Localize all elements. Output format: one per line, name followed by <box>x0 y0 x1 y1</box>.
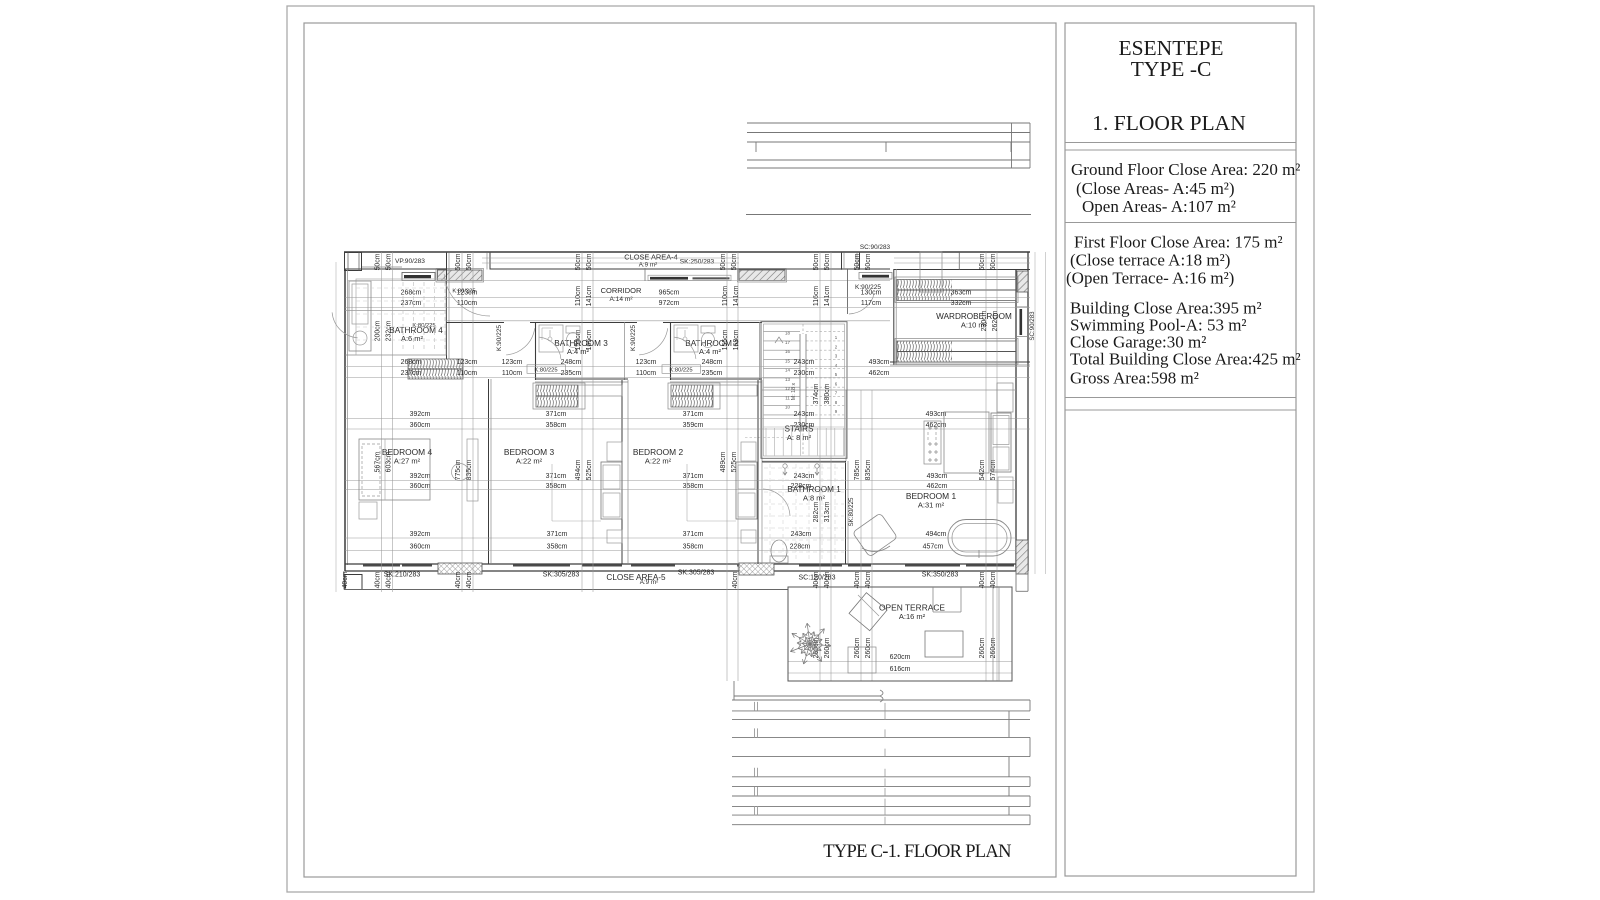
svg-text:243cm: 243cm <box>794 411 815 418</box>
svg-text:A:10 m²: A:10 m² <box>961 321 988 330</box>
svg-text:SC:90/283: SC:90/283 <box>1029 311 1036 341</box>
svg-text:SK:305/283: SK:305/283 <box>543 572 580 579</box>
svg-text:371cm: 371cm <box>546 473 567 480</box>
svg-text:117cm: 117cm <box>861 300 881 307</box>
svg-text:SK:210/283: SK:210/283 <box>384 572 421 579</box>
svg-text:260cm: 260cm <box>865 637 872 658</box>
svg-text:363cm: 363cm <box>951 290 972 297</box>
svg-text:18: 18 <box>785 331 790 336</box>
svg-text:110cm: 110cm <box>636 370 656 377</box>
svg-text:123cm: 123cm <box>457 359 478 366</box>
svg-text:228cm: 228cm <box>790 544 811 551</box>
svg-text:785cm: 785cm <box>854 459 861 480</box>
svg-text:243cm: 243cm <box>791 531 812 538</box>
svg-text:50cm: 50cm <box>990 253 997 270</box>
svg-text:SC:90/283: SC:90/283 <box>860 244 891 251</box>
svg-text:BEDROOM 2: BEDROOM 2 <box>633 447 684 457</box>
svg-text:371cm: 371cm <box>546 411 567 418</box>
svg-text:260cm: 260cm <box>824 637 831 658</box>
svg-text:282cm: 282cm <box>813 501 820 522</box>
svg-text:268cm: 268cm <box>401 359 422 366</box>
svg-text:50cm: 50cm <box>720 253 727 270</box>
svg-text:A: 8 m²: A: 8 m² <box>787 433 812 442</box>
svg-text:243cm: 243cm <box>794 473 815 480</box>
svg-text:525cm: 525cm <box>586 459 593 480</box>
svg-text:A:14 m²: A:14 m² <box>609 296 633 303</box>
svg-text:1. FLOOR PLAN: 1. FLOOR PLAN <box>1092 111 1246 135</box>
svg-text:248cm: 248cm <box>702 359 723 366</box>
svg-text:40cm: 40cm <box>732 571 739 588</box>
svg-text:374cm: 374cm <box>813 383 820 404</box>
svg-text:(Close Areas- A:45 m²): (Close Areas- A:45 m²) <box>1076 179 1235 198</box>
svg-text:237cm: 237cm <box>401 300 422 307</box>
svg-text:K:90/225: K:90/225 <box>630 325 637 351</box>
svg-text:40cm: 40cm <box>979 571 986 588</box>
svg-text:K:80/225: K:80/225 <box>669 368 692 374</box>
svg-text:616cm: 616cm <box>890 666 911 673</box>
svg-text:116cm: 116cm <box>813 286 820 306</box>
svg-text:A:27 m²: A:27 m² <box>394 457 421 466</box>
svg-text:358cm: 358cm <box>546 483 567 490</box>
svg-text:12: 12 <box>785 386 790 391</box>
svg-text:VP.90/283: VP.90/283 <box>395 258 425 265</box>
svg-text:17: 17 <box>785 340 790 345</box>
svg-text:392cm: 392cm <box>410 411 431 418</box>
svg-text:SK:350/283: SK:350/283 <box>922 572 959 579</box>
svg-text:Open Areas- A:107 m²: Open Areas- A:107 m² <box>1082 197 1236 216</box>
svg-text:50cm: 50cm <box>375 253 382 270</box>
svg-text:371cm: 371cm <box>683 531 704 538</box>
svg-text:A:4 m²: A:4 m² <box>567 347 590 356</box>
svg-text:380cm: 380cm <box>824 383 831 404</box>
svg-text:494cm: 494cm <box>575 459 582 480</box>
svg-text:50cm: 50cm <box>824 253 831 270</box>
svg-text:493cm: 493cm <box>926 411 947 418</box>
svg-text:40cm: 40cm <box>342 571 349 588</box>
svg-text:40cm: 40cm <box>466 571 473 588</box>
svg-text:BEDROOM 1: BEDROOM 1 <box>906 491 957 501</box>
svg-text:50cm: 50cm <box>386 253 393 270</box>
svg-text:358cm: 358cm <box>683 483 704 490</box>
svg-text:141cm: 141cm <box>733 285 740 306</box>
svg-text:110cm: 110cm <box>457 300 477 307</box>
svg-text:(Open Terrace- A:16 m²): (Open Terrace- A:16 m²) <box>1066 269 1234 288</box>
svg-text:50cm: 50cm <box>865 253 872 270</box>
svg-text:First Floor Close Area: 175 m²: First Floor Close Area: 175 m² <box>1074 233 1283 252</box>
svg-text:40cm: 40cm <box>455 571 462 588</box>
svg-text:360cm: 360cm <box>410 544 431 551</box>
svg-text:110cm: 110cm <box>457 370 477 377</box>
svg-text:230cm: 230cm <box>794 370 815 377</box>
svg-text:50cm: 50cm <box>731 253 738 270</box>
svg-text:Total Building Close Area:425: Total Building Close Area:425 m² <box>1070 350 1301 369</box>
svg-text:14: 14 <box>785 368 790 373</box>
svg-text:110cm: 110cm <box>502 370 522 377</box>
svg-text:358cm: 358cm <box>683 544 704 551</box>
svg-text:A:31 m²: A:31 m² <box>918 501 945 510</box>
svg-text:SK:305/283: SK:305/283 <box>678 570 715 577</box>
svg-text:332cm: 332cm <box>951 300 972 307</box>
svg-text:(Close terrace A:18 m²): (Close terrace A:18 m²) <box>1070 251 1230 270</box>
svg-text:50cm: 50cm <box>575 253 582 270</box>
svg-text:110cm: 110cm <box>575 286 582 306</box>
svg-text:493cm: 493cm <box>869 359 890 366</box>
svg-text:Ground Floor Close Area: 220 m: Ground Floor Close Area: 220 m² <box>1071 160 1300 179</box>
svg-text:50cm: 50cm <box>586 253 593 270</box>
svg-text:A:9 m²: A:9 m² <box>640 579 659 586</box>
svg-text:358cm: 358cm <box>547 544 568 551</box>
svg-text:360cm: 360cm <box>410 422 431 429</box>
svg-text:40cm: 40cm <box>854 571 861 588</box>
svg-text:360cm: 360cm <box>410 483 431 490</box>
svg-text:462cm: 462cm <box>927 483 948 490</box>
svg-text:260cm: 260cm <box>979 637 986 658</box>
svg-text:489cm: 489cm <box>720 451 727 472</box>
svg-text:50cm: 50cm <box>466 253 473 270</box>
svg-text:359cm: 359cm <box>683 422 704 429</box>
svg-text:10: 10 <box>785 405 790 410</box>
svg-text:11: 11 <box>785 395 790 400</box>
svg-text:141cm: 141cm <box>824 285 831 306</box>
svg-text:457cm: 457cm <box>923 544 944 551</box>
svg-text:OPEN TERRACE: OPEN TERRACE <box>879 603 945 613</box>
svg-text:40cm: 40cm <box>990 571 997 588</box>
svg-text:358cm: 358cm <box>546 422 567 429</box>
svg-text:371cm: 371cm <box>683 411 704 418</box>
svg-text:K:90/225: K:90/225 <box>855 284 881 291</box>
svg-text:392cm: 392cm <box>410 531 431 538</box>
svg-text:16: 16 <box>785 349 790 354</box>
svg-text:K:80/225: K:80/225 <box>452 289 475 295</box>
svg-text:371cm: 371cm <box>547 531 568 538</box>
svg-text:542cm: 542cm <box>979 459 986 480</box>
svg-text:SK:80/225: SK:80/225 <box>848 497 855 526</box>
svg-text:235cm: 235cm <box>702 370 723 377</box>
svg-text:TYPE C-1. FLOOR PLAN: TYPE C-1. FLOOR PLAN <box>823 842 1011 862</box>
svg-text:835cm: 835cm <box>865 459 872 480</box>
svg-text:50cm: 50cm <box>979 253 986 270</box>
svg-text:A:6 m²: A:6 m² <box>401 334 424 343</box>
svg-text:A:4 m²: A:4 m² <box>699 347 722 356</box>
svg-text:SC:120/283: SC:120/283 <box>799 575 836 582</box>
svg-text:567cm: 567cm <box>375 451 382 472</box>
svg-text:BEDROOM 4: BEDROOM 4 <box>382 447 433 457</box>
svg-text:965cm: 965cm <box>659 290 680 297</box>
svg-text:243cm: 243cm <box>794 359 815 366</box>
svg-text:A:22 m²: A:22 m² <box>645 457 672 466</box>
svg-text:313cm: 313cm <box>824 501 831 522</box>
svg-text:260cm: 260cm <box>990 637 997 658</box>
svg-text:371cm: 371cm <box>683 473 704 480</box>
svg-text:141cm: 141cm <box>586 285 593 306</box>
svg-text:237cm: 237cm <box>401 370 422 377</box>
svg-text:493cm: 493cm <box>927 473 948 480</box>
svg-text:A:16 m²: A:16 m² <box>899 612 926 621</box>
svg-text:40cm: 40cm <box>375 571 382 588</box>
svg-text:200cm: 200cm <box>375 320 382 341</box>
svg-text:SK:250/283: SK:250/283 <box>680 259 715 266</box>
svg-text:392cm: 392cm <box>410 473 431 480</box>
svg-text:775cm: 775cm <box>455 459 462 480</box>
svg-text:110cm: 110cm <box>722 286 729 306</box>
svg-text:15: 15 <box>785 358 790 363</box>
svg-text:494cm: 494cm <box>926 531 947 538</box>
svg-text:260cm: 260cm <box>854 637 861 658</box>
svg-text:123cm: 123cm <box>502 359 523 366</box>
svg-text:123cm: 123cm <box>636 359 657 366</box>
svg-text:40cm: 40cm <box>865 571 872 588</box>
svg-text:K:90/225: K:90/225 <box>496 325 503 351</box>
svg-text:TYPE -C: TYPE -C <box>1131 57 1212 81</box>
svg-text:620cm: 620cm <box>890 654 911 661</box>
svg-text:Gross Area:598 m²: Gross Area:598 m² <box>1070 369 1199 388</box>
svg-text:A:22 m²: A:22 m² <box>516 457 543 466</box>
svg-text:50cm: 50cm <box>854 253 861 270</box>
svg-text:M: 18 x: M: 18 x <box>791 382 797 400</box>
svg-text:50cm: 50cm <box>813 253 820 270</box>
svg-text:268cm: 268cm <box>401 290 422 297</box>
svg-text:K:80/225: K:80/225 <box>534 368 557 374</box>
svg-text:CLOSE AREA-4: CLOSE AREA-4 <box>624 253 677 262</box>
svg-text:50cm: 50cm <box>455 253 462 270</box>
svg-text:CORRIDOR: CORRIDOR <box>601 286 642 295</box>
svg-text:462cm: 462cm <box>869 370 890 377</box>
svg-text:972cm: 972cm <box>659 300 680 307</box>
svg-text:BEDROOM 3: BEDROOM 3 <box>504 447 555 457</box>
svg-text:A:9 m²: A:9 m² <box>639 262 658 269</box>
